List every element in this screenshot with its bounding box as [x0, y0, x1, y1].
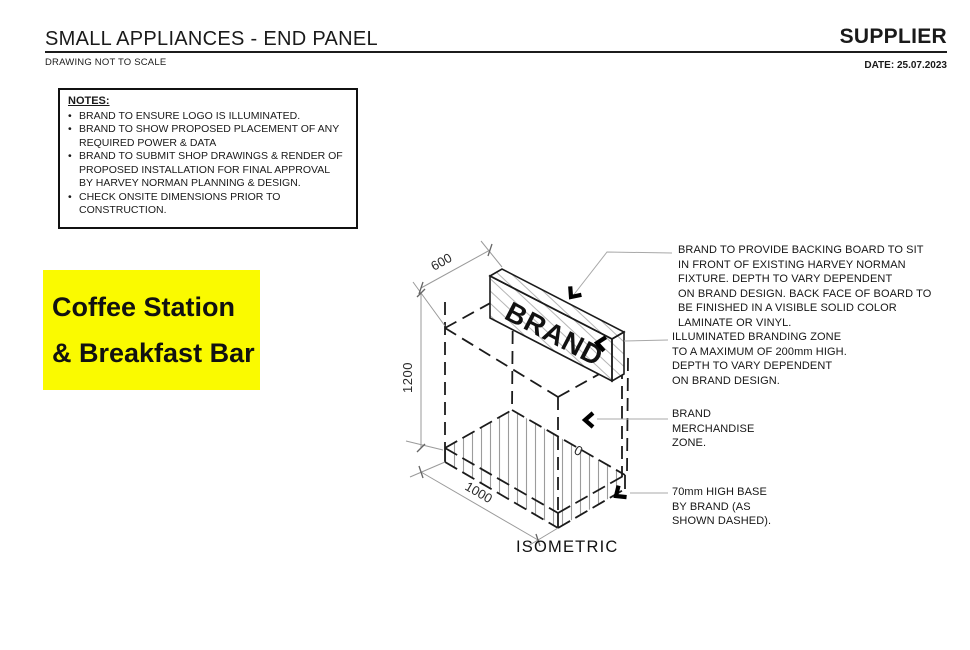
isometric-drawing: BRAND 600 1200 1000 0	[395, 228, 700, 575]
annotation-line: BY BRAND (AS	[672, 500, 771, 515]
annotation-line: ON BRAND DESIGN. BACK FACE OF BOARD TO	[678, 287, 931, 302]
annotation-merchandise-zone: BRAND MERCHANDISE ZONE.	[672, 407, 754, 451]
annotation-line: BE FINISHED IN A VISIBLE SOLID COLOR	[678, 301, 931, 316]
annotation-backing-board: BRAND TO PROVIDE BACKING BOARD TO SIT IN…	[678, 243, 931, 330]
header-divider	[45, 51, 947, 53]
note-item: CHECK ONSITE DIMENSIONS PRIOR TO CONSTRU…	[68, 191, 346, 218]
scale-note: DRAWING NOT TO SCALE	[45, 57, 166, 68]
dim-height: 1200	[400, 362, 415, 393]
base-plinth	[445, 410, 625, 528]
note-item: BRAND TO SHOW PROPOSED PLACEMENT OF ANY …	[68, 123, 346, 150]
view-label: ISOMETRIC	[516, 538, 618, 556]
note-item: BRAND TO SUBMIT SHOP DRAWINGS & RENDER O…	[68, 150, 346, 191]
notes-heading: NOTES:	[68, 95, 346, 109]
notes-box: NOTES: BRAND TO ENSURE LOGO IS ILLUMINAT…	[58, 88, 358, 229]
annotation-illuminated-zone: ILLUMINATED BRANDING ZONE TO A MAXIMUM O…	[672, 330, 847, 388]
annotation-line: ILLUMINATED BRANDING ZONE	[672, 330, 847, 345]
annotation-line: IN FRONT OF EXISTING HARVEY NORMAN	[678, 258, 931, 273]
note-item: BRAND TO ENSURE LOGO IS ILLUMINATED.	[68, 110, 346, 124]
drawing-sheet: SMALL APPLIANCES - END PANEL DRAWING NOT…	[0, 0, 970, 650]
annotation-line: TO A MAXIMUM OF 200mm HIGH.	[672, 345, 847, 360]
annotation-line: ON BRAND DESIGN.	[672, 374, 847, 389]
page-title: SMALL APPLIANCES - END PANEL	[45, 28, 378, 51]
arrow-merchandise-zone	[585, 413, 593, 427]
annotation-line: SHOWN DASHED).	[672, 514, 771, 529]
annotation-line: 70mm HIGH BASE	[672, 485, 771, 500]
annotation-line: LAMINATE OR VINYL.	[678, 316, 931, 331]
annotation-line: DEPTH TO VARY DEPENDENT	[672, 359, 847, 374]
annotation-base: 70mm HIGH BASE BY BRAND (AS SHOWN DASHED…	[672, 485, 771, 529]
annotation-line: MERCHANDISE	[672, 422, 754, 437]
brand-panel: BRAND	[490, 269, 624, 381]
dim-depth: 600	[428, 250, 454, 274]
highlight-line-2: & Breakfast Bar	[43, 330, 260, 376]
highlight-line-1: Coffee Station	[43, 284, 260, 330]
notes-list: BRAND TO ENSURE LOGO IS ILLUMINATED. BRA…	[68, 110, 346, 218]
area-highlight-label: Coffee Station & Breakfast Bar	[43, 270, 260, 390]
supplier-label: SUPPLIER	[840, 25, 947, 49]
annotation-line: BRAND TO PROVIDE BACKING BOARD TO SIT	[678, 243, 931, 258]
annotation-line: BRAND	[672, 407, 754, 422]
annotation-line: FIXTURE. DEPTH TO VARY DEPENDENT	[678, 272, 931, 287]
annotation-line: ZONE.	[672, 436, 754, 451]
base-stripe-hatch	[445, 410, 625, 528]
date-label: DATE: 25.07.2023	[864, 60, 947, 71]
